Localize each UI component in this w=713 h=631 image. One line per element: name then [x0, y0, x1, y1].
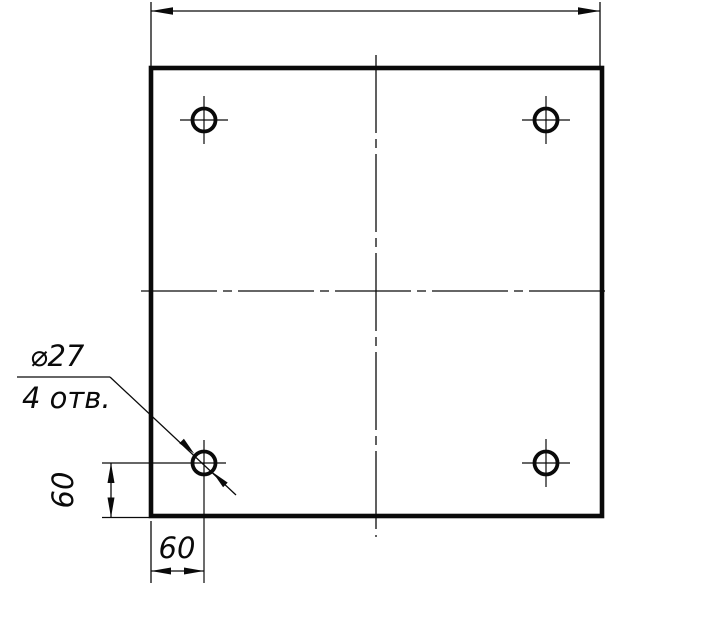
arrowhead-down-icon	[108, 498, 115, 518]
arrowhead-right-icon	[184, 568, 204, 575]
callout-text-diameter: ⌀27	[30, 339, 85, 373]
dimension-value-vertical: 60	[46, 472, 80, 509]
hole-top-left	[180, 96, 228, 144]
hole-bottom-right	[522, 439, 570, 487]
hole-top-right	[522, 96, 570, 144]
arrowhead-left-icon	[151, 7, 173, 15]
arrowhead-up-icon	[108, 463, 115, 483]
callout-arrowhead-upper-icon	[179, 439, 194, 454]
dimension-value-horizontal: 60	[159, 531, 196, 565]
drawing-area: ⌀27 4 отв. 60 60	[0, 0, 713, 631]
vertical-offset-dimension: 60	[46, 463, 149, 518]
callout-text-holes-count: 4 отв.	[22, 381, 111, 415]
arrowhead-right-icon	[578, 7, 600, 15]
arrowhead-left-icon	[151, 568, 171, 575]
technical-drawing-canvas: ⌀27 4 отв. 60 60	[0, 0, 713, 631]
horizontal-offset-dimension: 60	[151, 521, 204, 583]
